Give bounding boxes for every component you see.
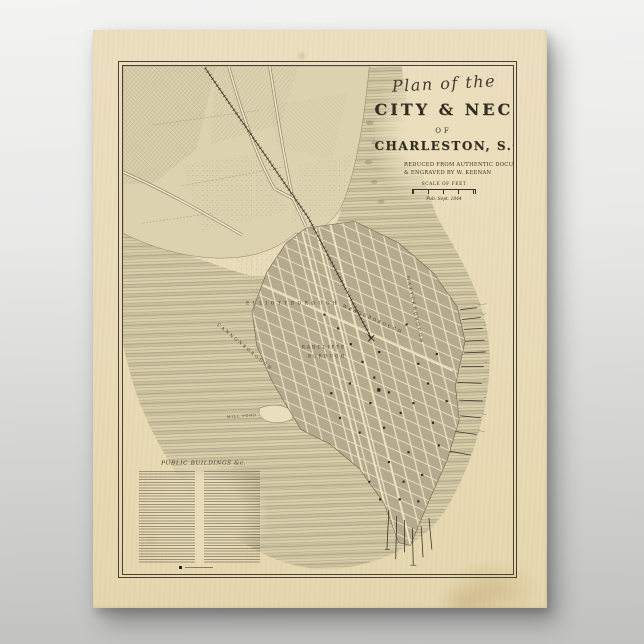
legend-columns bbox=[133, 471, 267, 564]
title-city: CHARLESTON, S.C. bbox=[375, 139, 513, 153]
map-poster: Plan of the CITY & NECK OF CHARLESTON, S… bbox=[93, 30, 547, 608]
map-label-radcliffeborough-2: BOROUGH bbox=[307, 353, 345, 358]
publication-line: Pub. Sept. 1844 bbox=[406, 196, 482, 201]
legend-heading: PUBLIC BUILDINGS &c. bbox=[161, 460, 239, 465]
legend-square-symbol bbox=[179, 566, 182, 569]
public-buildings-legend: PUBLIC BUILDINGS &c. bbox=[133, 460, 267, 569]
legend-column-2 bbox=[204, 471, 260, 564]
scale-bar bbox=[412, 189, 476, 194]
title-script: Plan of the bbox=[374, 70, 513, 96]
map-label-radcliffeborough-1: RADCLIFFE bbox=[301, 344, 346, 349]
legend-marker-label bbox=[185, 567, 213, 568]
title-block: Plan of the CITY & NECK OF CHARLESTON, S… bbox=[375, 70, 513, 204]
map-label-elliottborough: ELLIOTTBOROUGH bbox=[246, 300, 340, 305]
scale-of-feet-label: SCALE OF FEET bbox=[406, 181, 482, 186]
title-credit-2: & ENGRAVED BY W. KEENAN bbox=[403, 170, 483, 176]
title-of: OF bbox=[375, 127, 513, 135]
legend-marker-row bbox=[179, 566, 267, 569]
studio-background: Plan of the CITY & NECK OF CHARLESTON, S… bbox=[0, 0, 644, 644]
legend-column-1 bbox=[139, 471, 195, 564]
title-main: CITY & NECK bbox=[375, 100, 513, 119]
map-sheet: Plan of the CITY & NECK OF CHARLESTON, S… bbox=[122, 65, 514, 575]
title-credit-1: REDUCED FROM AUTHENTIC DOCUMENTS bbox=[403, 162, 483, 168]
map-frame-border: Plan of the CITY & NECK OF CHARLESTON, S… bbox=[118, 61, 517, 578]
